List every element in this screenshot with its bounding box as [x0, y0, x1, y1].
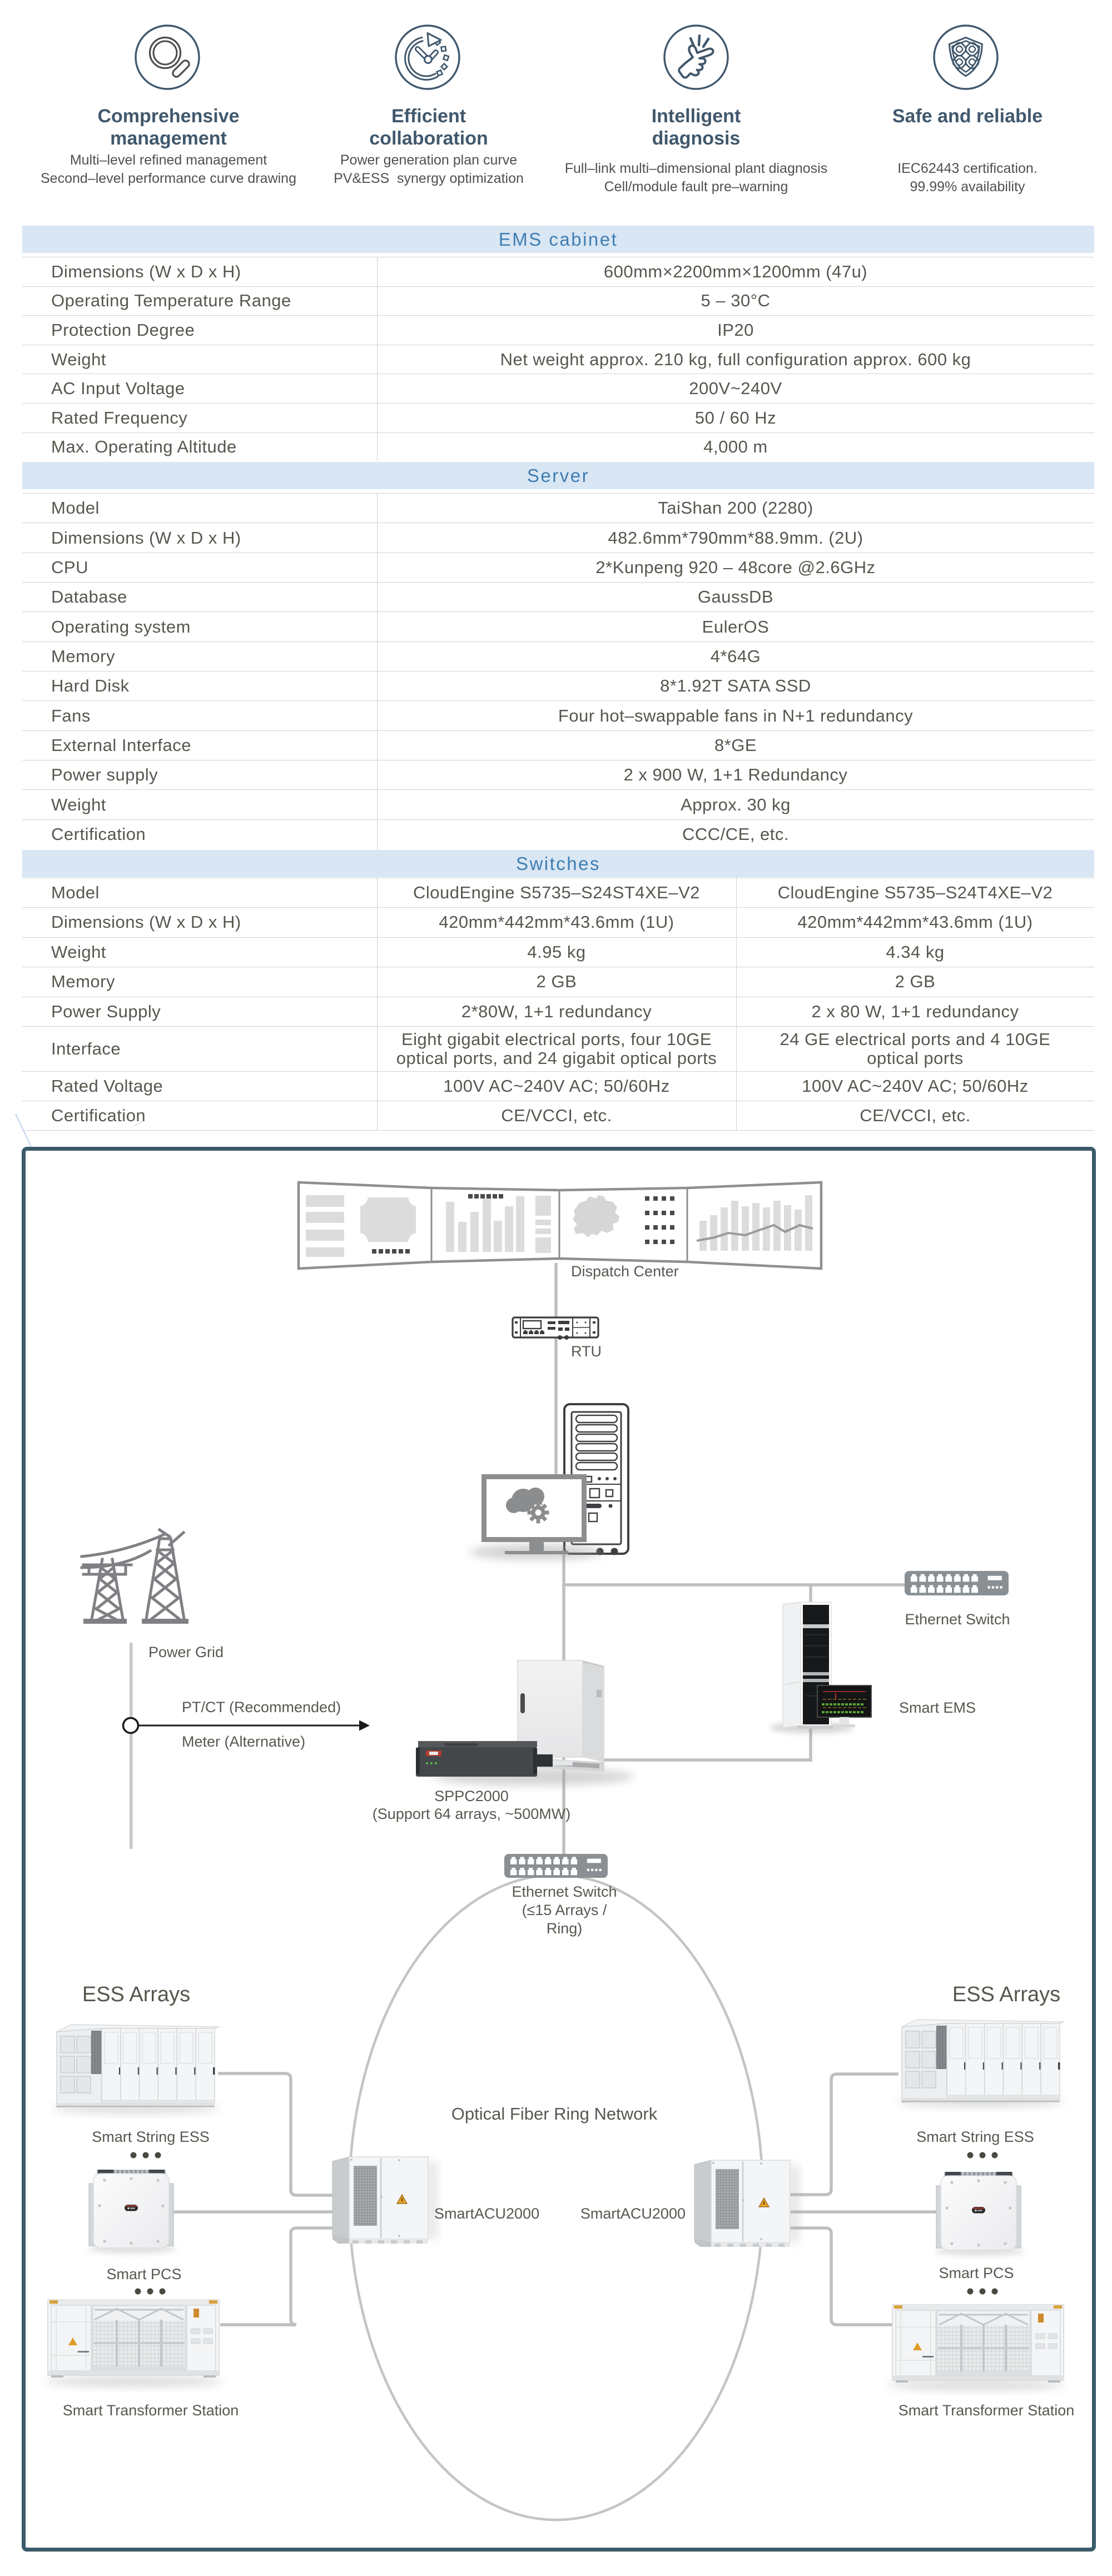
svg-text:SmartACU2000: SmartACU2000 [434, 2205, 539, 2222]
svg-text:Smart PCS: Smart PCS [939, 2265, 1014, 2281]
svg-text:Smart PCS: Smart PCS [106, 2266, 181, 2282]
svg-text:Meter (Alternative): Meter (Alternative) [182, 1733, 305, 1750]
svg-text:Smart EMS: Smart EMS [899, 1699, 976, 1716]
svg-text:ESS Arrays: ESS Arrays [82, 1983, 190, 2006]
svg-text:RTU: RTU [571, 1343, 602, 1360]
svg-text:SPPC2000: SPPC2000 [434, 1788, 509, 1804]
svg-text:SmartACU2000: SmartACU2000 [580, 2205, 686, 2222]
svg-text:Smart String ESS: Smart String ESS [916, 2129, 1034, 2145]
svg-text:Ethernet Switch: Ethernet Switch [512, 1883, 617, 1900]
svg-text:Ethernet Switch: Ethernet Switch [905, 1611, 1010, 1628]
svg-text:Smart Transformer Station: Smart Transformer Station [898, 2402, 1075, 2419]
svg-text:PT/CT (Recommended): PT/CT (Recommended) [182, 1699, 341, 1715]
svg-text:Power Grid: Power Grid [148, 1644, 224, 1660]
svg-text:(≤15 Arrays /: (≤15 Arrays / [522, 1902, 607, 1918]
svg-text:(Support 64 arrays, ~500MW): (Support 64 arrays, ~500MW) [373, 1806, 570, 1822]
svg-text:Ring): Ring) [547, 1920, 583, 1937]
svg-text:Dispatch Center: Dispatch Center [571, 1263, 679, 1280]
svg-text:ESS Arrays: ESS Arrays [952, 1983, 1060, 2006]
svg-text:Smart Transformer Station: Smart Transformer Station [63, 2402, 239, 2419]
svg-text:Optical Fiber Ring Network: Optical Fiber Ring Network [451, 2104, 658, 2124]
svg-text:Smart String ESS: Smart String ESS [92, 2129, 210, 2145]
